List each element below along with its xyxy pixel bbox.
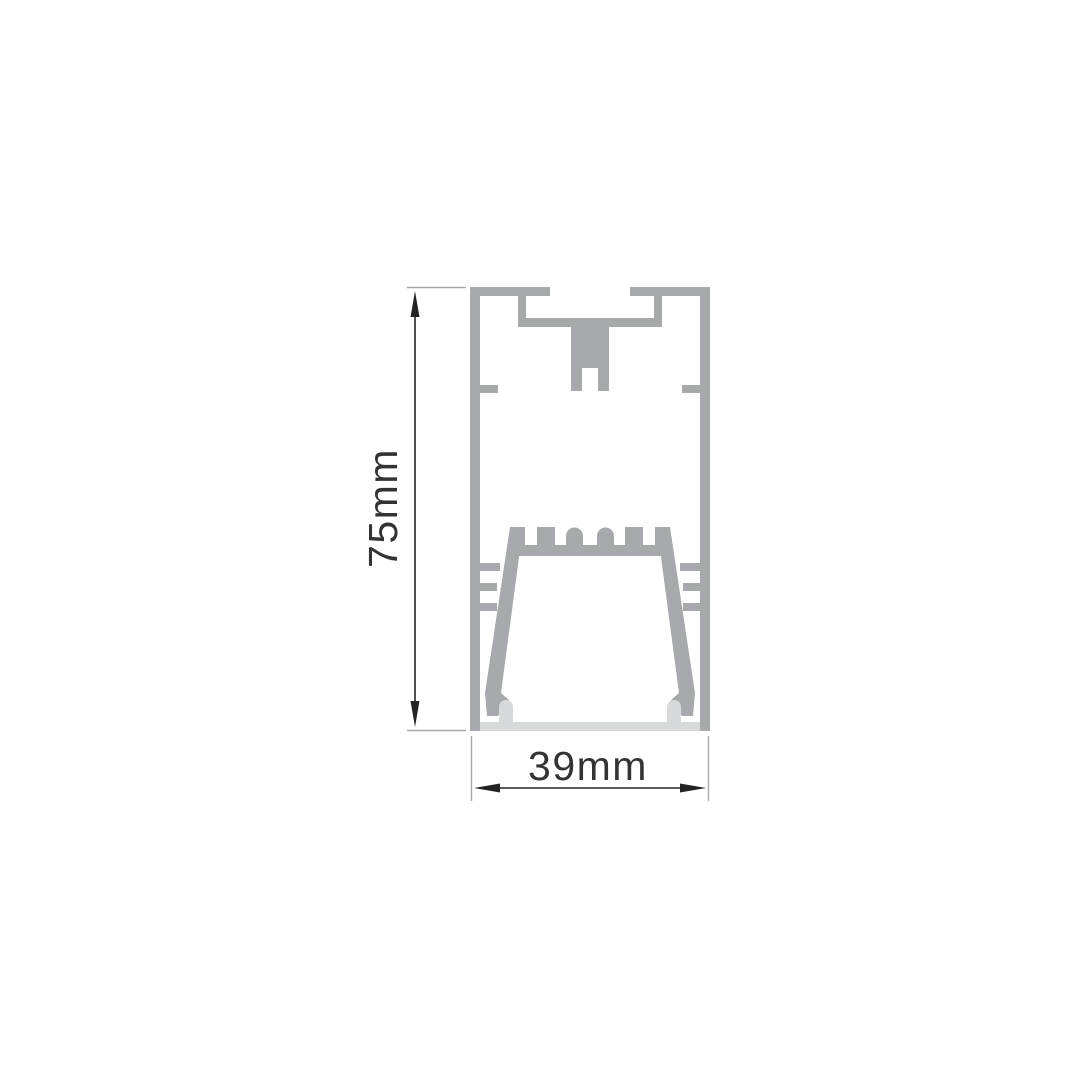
- arrow-right-icon: [680, 784, 706, 793]
- channel-wall-left: [518, 294, 526, 320]
- height-dimension: 75mm: [360, 288, 466, 731]
- channel-base: [518, 318, 662, 327]
- diffuser-clip-right: [667, 700, 681, 722]
- led-mounting-plate: [510, 527, 670, 556]
- reflector-wall-right: [657, 527, 695, 716]
- retention-tab-left-3: [480, 603, 497, 611]
- outer-wall-left: [470, 287, 480, 731]
- retention-tab-right-2: [683, 583, 700, 591]
- retention-tab-left-2: [480, 583, 497, 591]
- retention-tab-right-1: [680, 563, 700, 571]
- diffuser-clip-left: [499, 700, 513, 722]
- width-label: 39mm: [528, 743, 648, 789]
- led-profile-technical-diagram: 75mm 39mm: [0, 0, 1080, 1080]
- center-stem: [571, 327, 609, 391]
- reflector-wall-left: [485, 527, 523, 716]
- arrow-up-icon: [411, 291, 420, 317]
- profile-cross-section-drawing: 75mm 39mm: [0, 0, 1080, 1080]
- arrow-left-icon: [474, 784, 500, 793]
- mounting-tab-upper-left: [480, 385, 498, 393]
- channel-wall-right: [654, 294, 662, 320]
- profile-body: [470, 287, 710, 731]
- mounting-tab-upper-right: [682, 385, 700, 393]
- diffuser-base: [480, 722, 700, 731]
- outer-wall-right: [700, 287, 710, 731]
- retention-tab-left-1: [480, 563, 500, 571]
- width-dimension: 39mm: [472, 736, 709, 801]
- top-flange-left: [470, 287, 550, 296]
- retention-tab-right-3: [683, 603, 700, 611]
- diffuser: [480, 700, 700, 731]
- arrow-down-icon: [411, 701, 420, 727]
- top-flange-right: [630, 287, 710, 296]
- height-label: 75mm: [360, 448, 406, 568]
